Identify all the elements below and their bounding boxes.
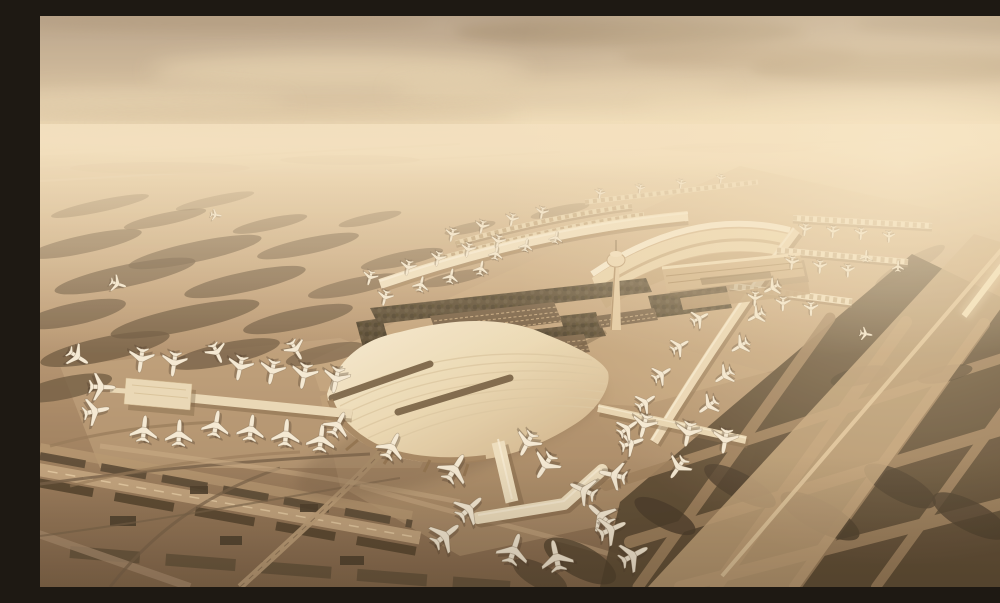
- foreground-shade: [40, 456, 1000, 587]
- atmosphere: [40, 16, 1000, 587]
- airport-scene: [40, 16, 1000, 587]
- airport-rendering: [40, 16, 1000, 587]
